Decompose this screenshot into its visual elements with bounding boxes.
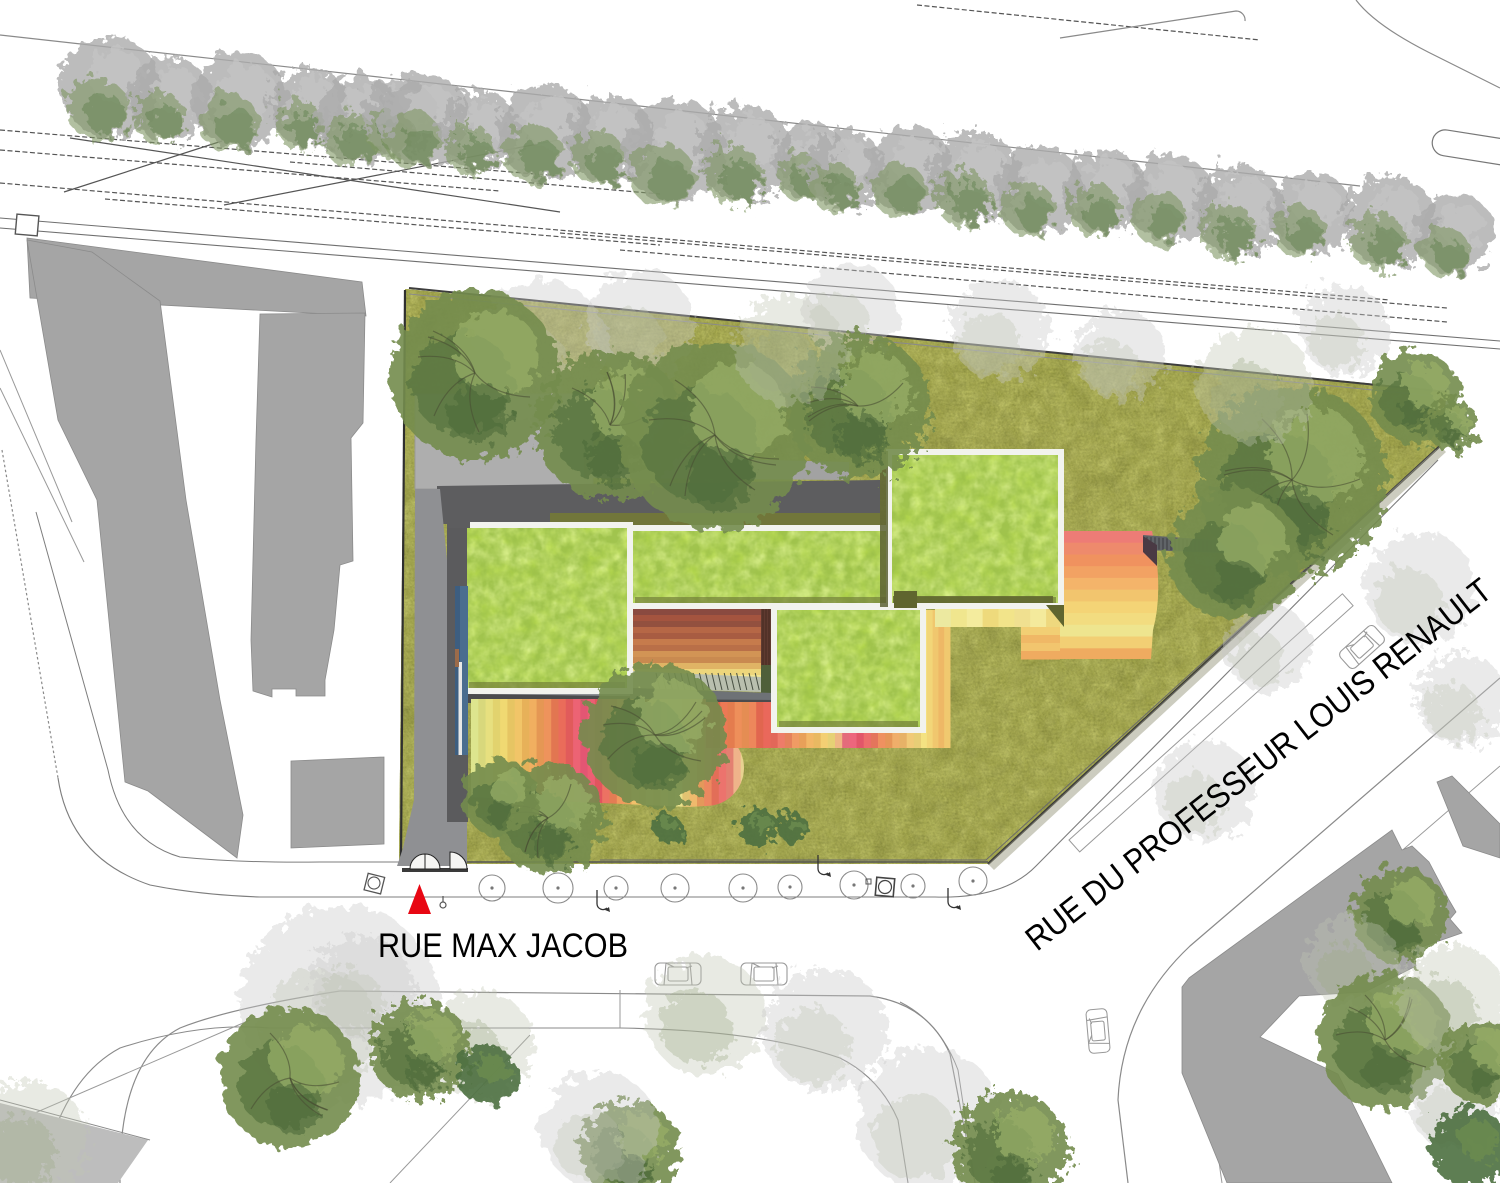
svg-text:RUE MAX JACOB: RUE MAX JACOB [378,927,628,965]
